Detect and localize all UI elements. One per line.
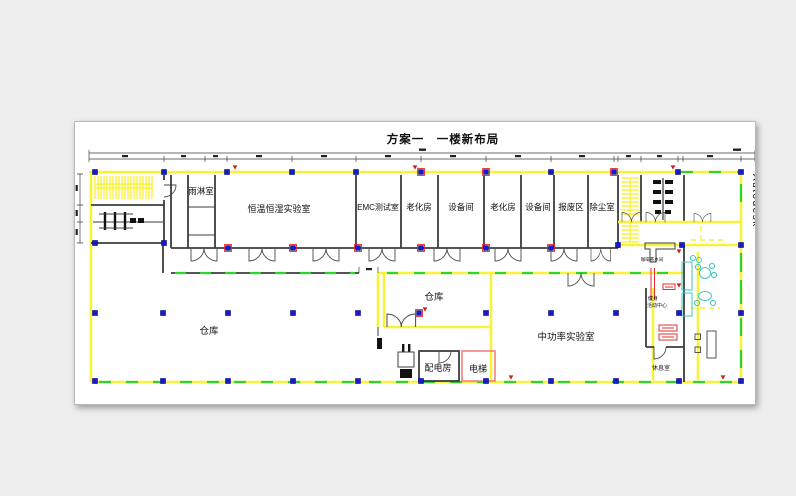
room-label-equipment-1: 设备间 (448, 202, 474, 212)
room-label-large-warehouse: 仓库 (199, 325, 219, 337)
power-room-walls (377, 338, 459, 381)
room-label-const-temp-humidity-lab: 恒温恒湿实验室 (247, 203, 310, 214)
room-label-aging-1: 老化房 (406, 202, 432, 212)
room-label-fitness-line2: 活动中心 (647, 302, 667, 309)
room-label-rest-room: 休息室 (652, 364, 670, 372)
drawing-canvas: 方案一 一楼新布局 (74, 121, 756, 405)
staircase-left (95, 176, 153, 199)
room-label-coffee-pantry: 咖啡茶水间 (641, 256, 664, 263)
gym-equipment (659, 325, 677, 340)
dimension-line-left (76, 174, 83, 243)
page-title: 方案一 一楼新布局 (387, 132, 500, 146)
room-label-dust-removal: 除尘室 (589, 202, 615, 212)
room-label-elevator: 电梯 (469, 363, 487, 374)
staircase-right (621, 178, 639, 242)
room-label-mid-power-lab: 中功率实验室 (537, 331, 594, 343)
room-label-scrap-area: 报废区 (558, 202, 584, 212)
room-label-equipment-2: 设备间 (525, 202, 551, 212)
autodesk-watermark: Autodesk (750, 174, 755, 228)
dimension-line-top (89, 149, 755, 163)
lounge-tables (691, 256, 717, 306)
room-label-power-distribution: 配电房 (424, 362, 451, 373)
app-background: { "title": "方案一 一楼新布局", "watermark": "Au… (0, 0, 796, 496)
room-label-fitness-line1: 健身 (648, 295, 658, 302)
structural-columns (93, 169, 744, 384)
transformer-symbol (398, 344, 414, 378)
room-label-aging-2: 老化房 (490, 202, 516, 212)
equipment-riser-symbols (653, 178, 673, 220)
room-label-small-warehouse: 仓库 (424, 291, 444, 303)
room-label-emc-test: EMC测试室 (357, 202, 399, 212)
room-label-rain: 雨淋室 (188, 186, 214, 196)
floor-plan-svg: 方案一 一楼新布局 (75, 122, 755, 404)
